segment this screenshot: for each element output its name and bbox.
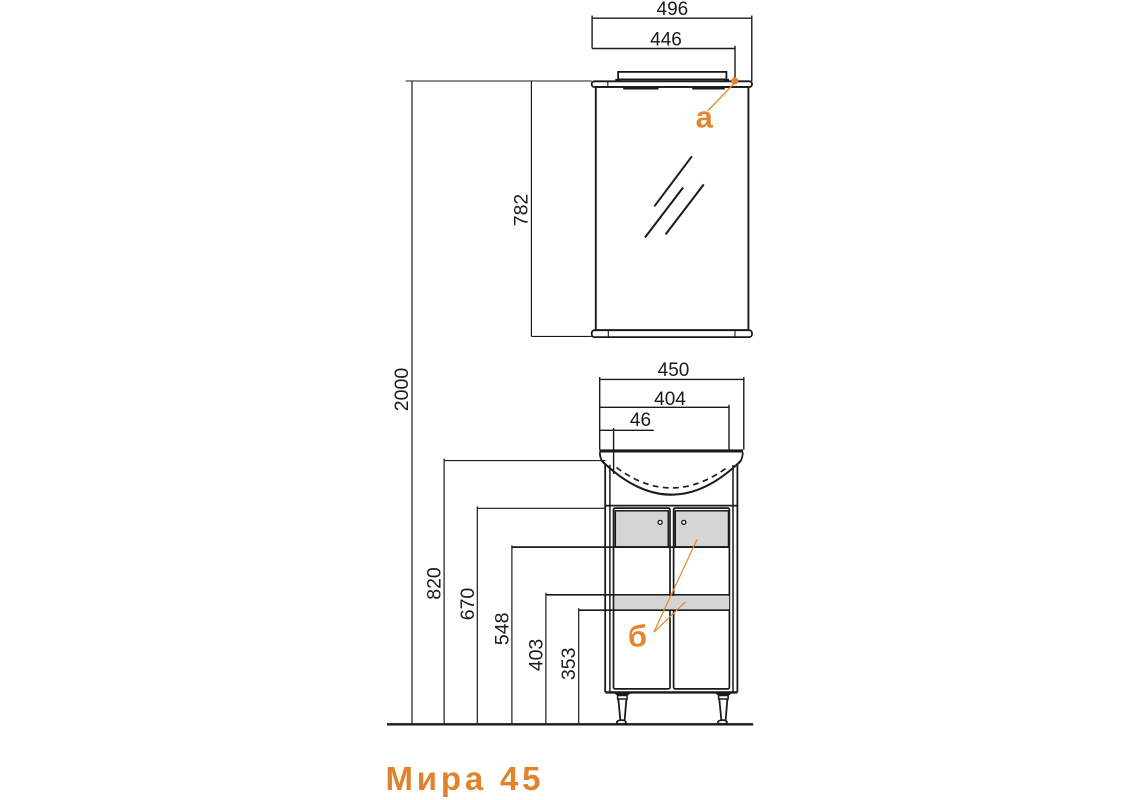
svg-text:404: 404 (654, 389, 686, 410)
svg-text:Мира 45: Мира 45 (386, 760, 545, 797)
svg-text:496: 496 (657, 0, 689, 20)
svg-text:670: 670 (457, 588, 479, 621)
svg-text:446: 446 (650, 30, 682, 51)
svg-text:46: 46 (630, 410, 651, 431)
svg-text:2000: 2000 (391, 368, 413, 412)
svg-text:б: б (628, 619, 647, 654)
svg-text:403: 403 (525, 639, 547, 672)
svg-text:820: 820 (424, 567, 446, 600)
svg-text:782: 782 (510, 194, 532, 227)
svg-text:353: 353 (558, 648, 580, 681)
svg-text:548: 548 (491, 613, 513, 646)
svg-text:a: a (696, 100, 714, 135)
svg-text:450: 450 (658, 360, 690, 381)
